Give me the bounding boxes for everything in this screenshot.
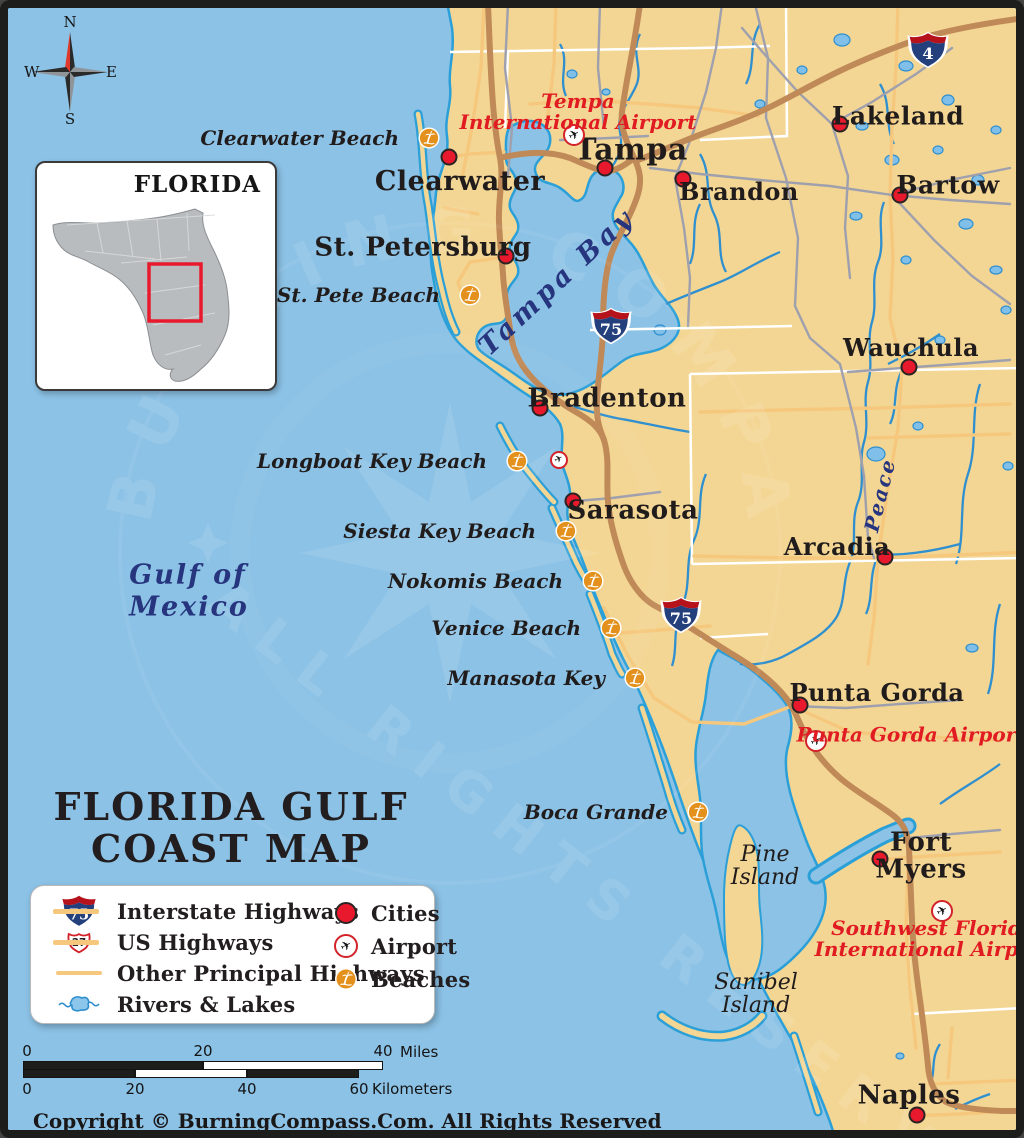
city-label: FortMyers [875, 829, 966, 882]
compass-w: W [24, 63, 40, 81]
city-label: Wauchula [843, 336, 979, 360]
legend-item: Beaches [331, 966, 470, 992]
city-label: Bartow [896, 172, 999, 198]
water-label: Mexico [129, 592, 249, 623]
scale-seg [247, 1069, 359, 1078]
city-label: St. Petersburg [314, 235, 531, 262]
scale-tick-km: 0 [22, 1080, 32, 1098]
map-frame: BURNING COMPASS ALL RIGHTS RESERVED N S … [0, 0, 1024, 1138]
city-dot-icon [441, 149, 458, 166]
interstate-shield-icon: 75 [658, 595, 704, 635]
compass-rose: N S W E [20, 14, 120, 126]
scale-tick-km: 20 [125, 1080, 144, 1098]
airport-label: Southwest FloridaInternational Airport [815, 918, 1024, 960]
legend-right-column: Cities✈Airport Beaches [331, 900, 470, 992]
rivers-lakes-icon [58, 993, 100, 1015]
city-label: Tampa [574, 136, 688, 167]
compass-e: E [106, 63, 117, 81]
water-label: Peace [859, 456, 900, 535]
water-label: Gulf of [129, 560, 247, 591]
island-label: SanibelIsland [714, 971, 798, 1017]
compass-n: N [63, 14, 76, 31]
airport-label: Punta Gorda Airport [797, 725, 1024, 746]
beach-icon [600, 617, 623, 640]
legend-item-label: US Highways [117, 930, 273, 955]
beach-label: Manasota Key [447, 666, 605, 690]
city-label: Naples [858, 1083, 961, 1110]
beach-icon [334, 967, 358, 991]
interstate-shield-icon: 75 [588, 306, 634, 346]
scale-unit-km: Kilometers [372, 1080, 452, 1098]
compass-s: S [65, 110, 75, 126]
florida-inset-map: FLORIDA [35, 161, 277, 391]
principal-highway-line-icon [56, 971, 102, 976]
interstate-shield-icon: 4 [905, 30, 951, 70]
legend-item-label: Airport [371, 934, 457, 959]
map-title: FLORIDA GULF COAST MAP [26, 786, 436, 870]
city-dot-icon [335, 902, 357, 924]
beach-icon [687, 801, 710, 824]
scale-seg [135, 1069, 247, 1078]
city-label: Arcadia [784, 535, 890, 559]
beach-label: Boca Grande [524, 800, 668, 824]
legend-item-label: Interstate Highways [117, 899, 359, 924]
city-label: Clearwater [375, 168, 545, 196]
beach-icon [418, 127, 441, 150]
beach-icon [582, 570, 605, 593]
legend-item-label: Rivers & Lakes [117, 992, 295, 1017]
beach-icon [555, 520, 578, 543]
inset-title: FLORIDA [134, 171, 261, 198]
city-label: Sarasota [567, 498, 698, 525]
svg-text:4: 4 [922, 44, 933, 63]
map-title-line1: FLORIDA GULF [26, 786, 436, 828]
legend-item-label: Beaches [371, 967, 470, 992]
beach-icon [459, 284, 482, 307]
legend-item: Cities [331, 900, 470, 926]
beach-label: Siesta Key Beach [343, 519, 536, 543]
scale-seg [23, 1069, 135, 1078]
island-label: PineIsland [731, 843, 799, 889]
svg-text:75: 75 [670, 609, 692, 628]
scale-tick-km: 40 [237, 1080, 256, 1098]
scale-tick-km: 60 [349, 1080, 368, 1098]
map-title-line2: COAST MAP [26, 828, 436, 870]
legend: 75 Interstate Highways 27 US HighwaysOth… [30, 885, 435, 1024]
scale-unit-miles: Miles [400, 1043, 438, 1061]
beach-icon [506, 450, 529, 473]
beach-label: Clearwater Beach [200, 126, 399, 150]
airport-label: TempaInternational Airport [460, 91, 697, 133]
legend-item-label: Cities [371, 901, 440, 926]
scale-tick-miles: 40 [373, 1042, 392, 1060]
legend-item: ✈Airport [331, 933, 470, 959]
scale-tick-miles: 0 [22, 1042, 32, 1060]
scale-tick-miles: 20 [193, 1042, 212, 1060]
beach-icon [624, 667, 647, 690]
city-label: Brandon [679, 180, 799, 204]
city-label: Lakeland [832, 103, 964, 129]
airport-icon: ✈ [550, 451, 568, 469]
beach-label: Longboat Key Beach [257, 449, 487, 473]
svg-text:75: 75 [600, 320, 622, 339]
copyright-text: Copyright © BurningCompass.Com. All Righ… [33, 1109, 662, 1133]
beach-label: Venice Beach [431, 616, 581, 640]
city-label: Punta Gorda [790, 681, 965, 705]
beach-label: St. Pete Beach [277, 283, 440, 307]
beach-label: Nokomis Beach [388, 569, 563, 593]
legend-item: Rivers & Lakes [51, 991, 425, 1017]
airport-icon: ✈ [334, 934, 358, 958]
city-label: Bradenton [528, 386, 687, 413]
